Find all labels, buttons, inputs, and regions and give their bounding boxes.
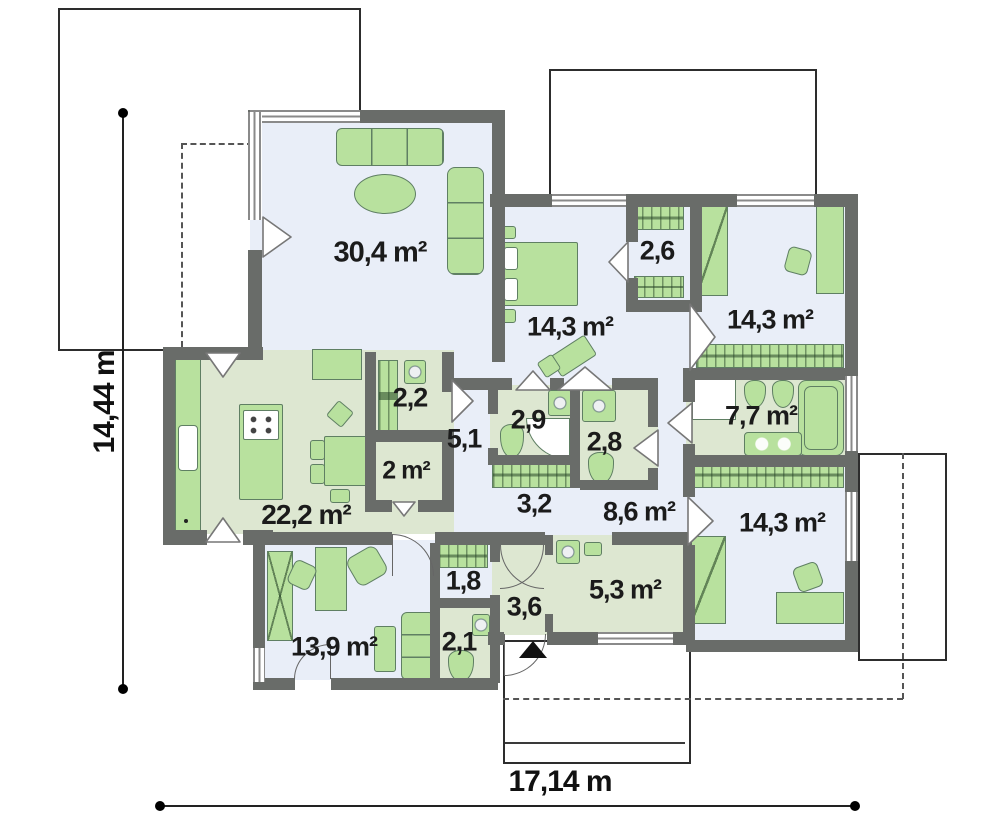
opening-chevron [688, 497, 713, 545]
room-area-label: 14,3 m² [739, 508, 825, 539]
opening-chevron [634, 430, 658, 466]
room-area-label: 14,3 m² [727, 305, 813, 336]
room-area-label: 5,1 [447, 424, 482, 455]
vertical-dimension-line [122, 113, 124, 690]
dimension-dot [118, 684, 128, 694]
room-area-label: 2,2 [393, 383, 428, 414]
opening-chevron [206, 518, 240, 542]
room-area-label: 2,6 [640, 236, 675, 267]
floor-plan: 30,4 m² 14,3 m² 2,6 14,3 m² 2,2 5,1 2 m²… [0, 0, 1000, 823]
room-area-label: 7,7 m² [725, 401, 797, 432]
room-area-label: 3,2 [517, 489, 552, 520]
room-area-label: 1,8 [446, 566, 481, 597]
opening-chevron [263, 217, 291, 257]
vertical-dimension-label: 14,44 m [88, 322, 122, 482]
opening-chevron [516, 371, 550, 390]
opening-chevron [393, 502, 415, 516]
horizontal-dimension-label: 17,14 m [460, 765, 660, 799]
opening-chevron [206, 353, 240, 377]
opening-chevron [558, 367, 612, 390]
room-area-label: 3,6 [507, 592, 542, 623]
room-area-label: 5,3 m² [589, 575, 661, 606]
entrance-arrow-icon [519, 641, 547, 658]
room-area-label: 2,9 [511, 405, 546, 436]
room-area-label: 2,1 [442, 627, 477, 658]
room-area-label: 30,4 m² [334, 237, 427, 270]
room-area-label: 13,9 m² [291, 632, 377, 663]
door-opening-marks [0, 0, 1000, 823]
opening-chevron [668, 403, 692, 443]
opening-chevron [452, 380, 473, 422]
horizontal-dimension-line [160, 805, 856, 807]
room-area-label: 2,8 [587, 427, 622, 458]
dimension-dot [850, 801, 860, 811]
room-area-label: 2 m² [382, 457, 429, 486]
opening-chevron [609, 242, 628, 282]
opening-chevron [690, 304, 715, 370]
room-area-label: 22,2 m² [261, 499, 351, 531]
room-area-label: 8,6 m² [603, 497, 675, 528]
room-area-label: 14,3 m² [527, 312, 613, 343]
dimension-dot [118, 108, 128, 118]
dimension-dot [155, 801, 165, 811]
